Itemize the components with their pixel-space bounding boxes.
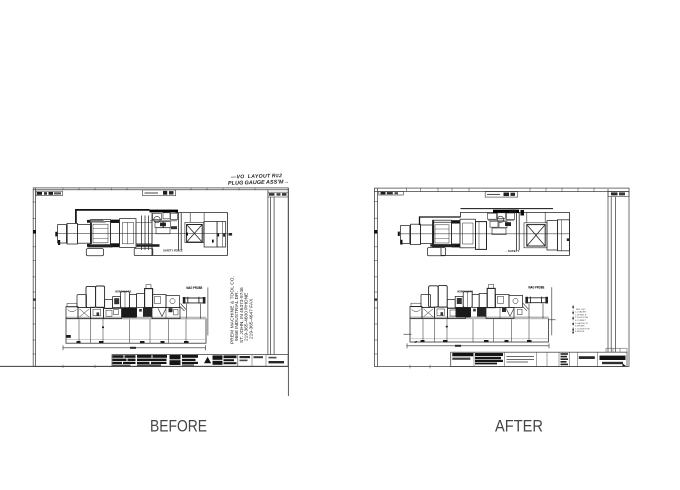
svg-text:PLUG GAUGE ASS’M→: PLUG GAUGE ASS’M→ bbox=[228, 179, 289, 187]
svg-text:1-LOADER: 1-LOADER bbox=[575, 311, 586, 314]
svg-text:3-CHUCK AS: 3-CHUCK AS bbox=[575, 316, 589, 319]
svg-text:5-GAUGE ST: 5-GAUGE ST bbox=[575, 322, 589, 325]
svg-text:4-TURRET: 4-TURRET bbox=[575, 320, 586, 322]
svg-text:7-CONVEYOR: 7-CONVEYOR bbox=[575, 328, 590, 330]
svg-text:MAG PROBE: MAG PROBE bbox=[186, 286, 202, 290]
svg-text:WORKHOLD FIX: WORKHOLD FIX bbox=[457, 290, 473, 294]
svg-text:6-PROBE: 6-PROBE bbox=[575, 326, 585, 328]
svg-text:2-SPINDLE: 2-SPINDLE bbox=[575, 314, 587, 316]
svg-text:AFTER: AFTER bbox=[495, 417, 543, 436]
svg-text:BEFORE: BEFORE bbox=[150, 417, 207, 436]
svg-text:REF LIST: REF LIST bbox=[576, 309, 586, 311]
svg-text:←SAFETY: ←SAFETY bbox=[505, 250, 520, 253]
svg-text:SAFETY FENCE: SAFETY FENCE bbox=[163, 250, 183, 253]
svg-text:219-365-4647 FAX: 219-365-4647 FAX bbox=[248, 298, 254, 339]
svg-text:MAG PROBE: MAG PROBE bbox=[528, 286, 544, 290]
svg-text:8-FENCE: 8-FENCE bbox=[575, 331, 585, 333]
svg-text:WORKHOLD FIX: WORKHOLD FIX bbox=[115, 289, 131, 293]
